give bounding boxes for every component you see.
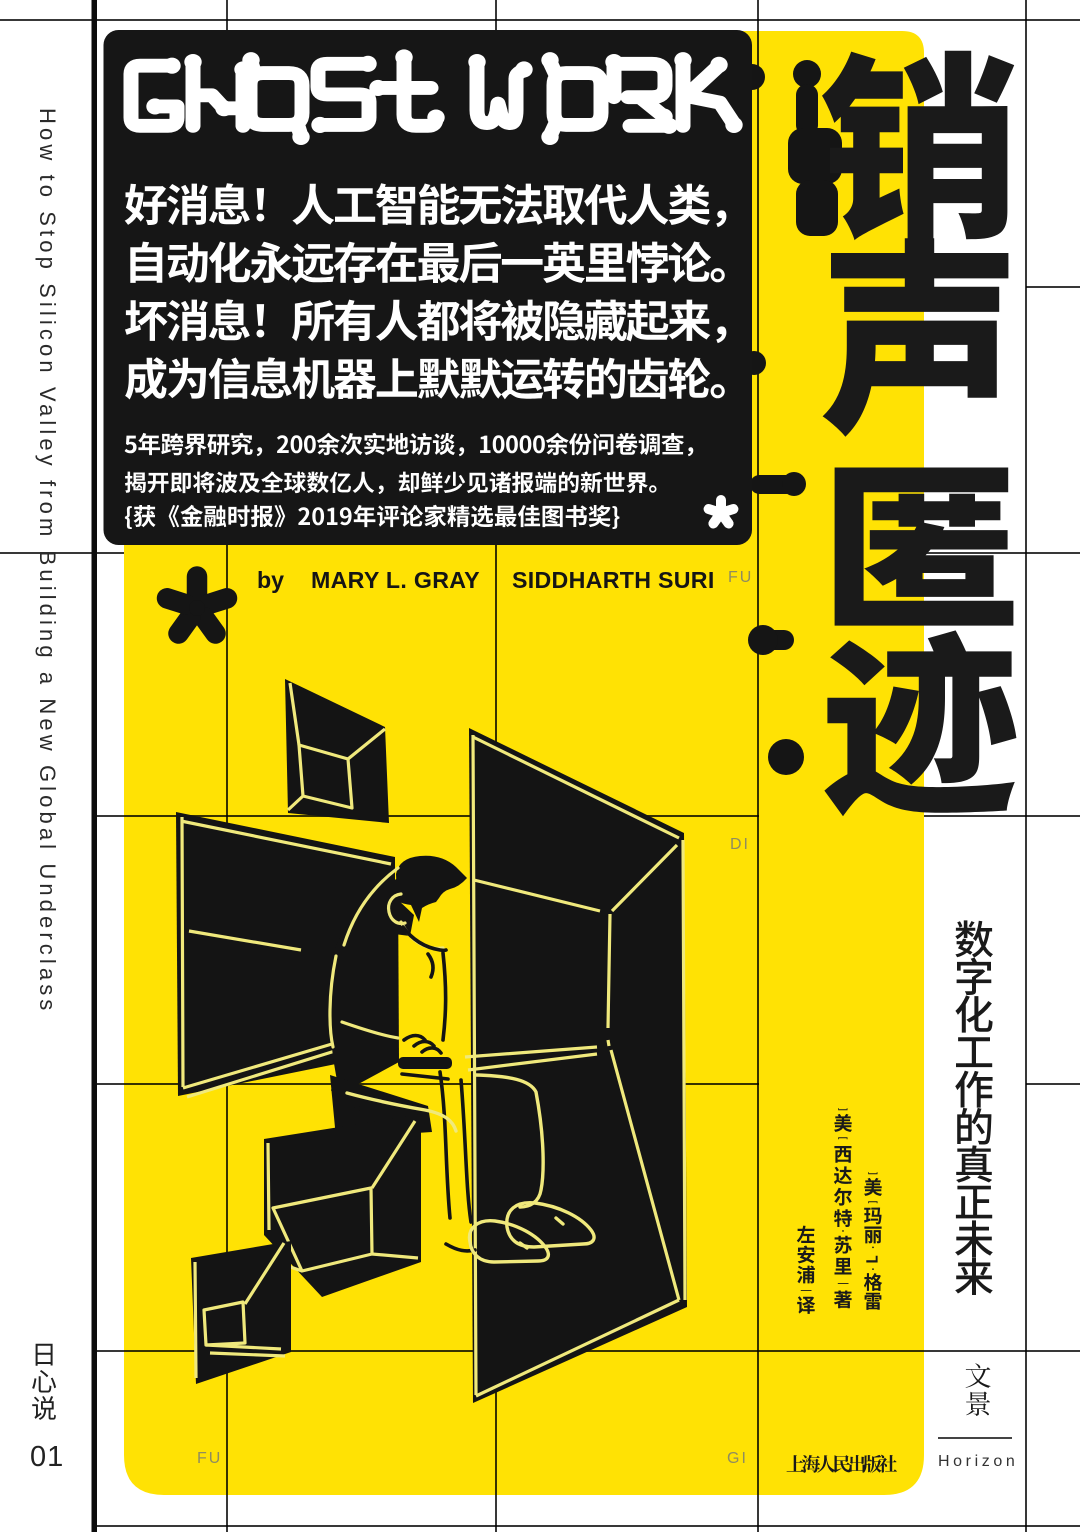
svg-text:by: by	[257, 567, 284, 593]
svg-text:GI: GI	[727, 1450, 748, 1467]
svg-text:How to Stop Silicon Valley fro: How to Stop Silicon Valley from Building…	[35, 108, 60, 1014]
svg-text:FU: FU	[728, 569, 753, 586]
svg-text:FU: FU	[197, 1450, 222, 1467]
svg-text:Horizon: Horizon	[938, 1453, 1018, 1470]
svg-text:SIDDHARTH SURI: SIDDHARTH SURI	[512, 567, 715, 593]
svg-text:DI: DI	[730, 836, 750, 853]
svg-text:MARY L. GRAY: MARY L. GRAY	[311, 567, 480, 593]
svg-text:01: 01	[30, 1441, 64, 1473]
